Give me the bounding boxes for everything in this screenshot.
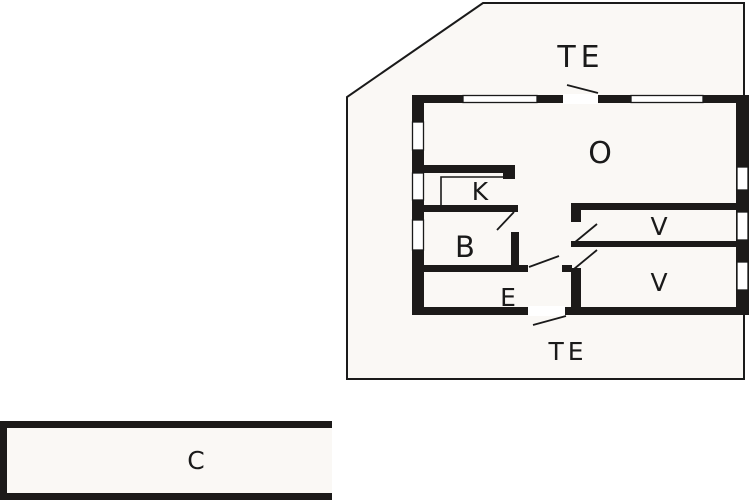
window-left-1: [413, 122, 424, 150]
bedroom-upper-wall-top: [571, 203, 737, 210]
window-right-3: [737, 262, 748, 290]
kitchen-bathroom-wall: [424, 205, 518, 212]
window-right-2: [737, 212, 748, 240]
room-label-bathroom: B: [455, 230, 475, 264]
kitchen-wall-top: [424, 165, 504, 173]
floor-plan-drawing: TE O K B E V V TE C: [0, 0, 750, 500]
window-top-2: [631, 96, 703, 103]
room-label-bedroom-upper: V: [650, 212, 667, 241]
carport-floor: [1, 421, 332, 500]
window-top-1: [463, 96, 537, 103]
hall-bedroom-wall-lower: [571, 268, 581, 308]
carport-structure: [0, 421, 332, 500]
bedroom-divider-wall: [571, 241, 737, 247]
entry-wall-stub: [562, 265, 572, 272]
terrace-door-opening: [563, 94, 598, 104]
carport-wall-bottom: [0, 493, 332, 500]
window-right-1: [737, 167, 748, 190]
room-label-living-room: O: [588, 136, 612, 171]
carport-wall-left: [0, 421, 7, 500]
carport-wall-top: [0, 421, 332, 428]
window-left-3: [413, 220, 424, 250]
front-door-opening: [528, 306, 565, 316]
room-label-carport: C: [187, 446, 204, 475]
room-label-kitchen: K: [472, 177, 489, 206]
room-label-bedroom-lower: V: [650, 268, 667, 297]
site-boundary: [347, 3, 744, 379]
room-label-terrace-top: TE: [556, 40, 604, 75]
bathroom-entry-wall: [424, 265, 528, 272]
window-left-2: [413, 173, 424, 200]
bathroom-wall-right: [511, 232, 519, 265]
room-label-terrace-bottom: TE: [547, 337, 587, 366]
site-boundary-polygon: [347, 3, 744, 379]
room-label-entry: E: [500, 283, 516, 312]
floor-plan-canvas: TE O K B E V V TE C: [0, 0, 750, 500]
exterior-wall-bottom: [412, 307, 749, 315]
kitchen-wall-end-block: [503, 165, 515, 179]
